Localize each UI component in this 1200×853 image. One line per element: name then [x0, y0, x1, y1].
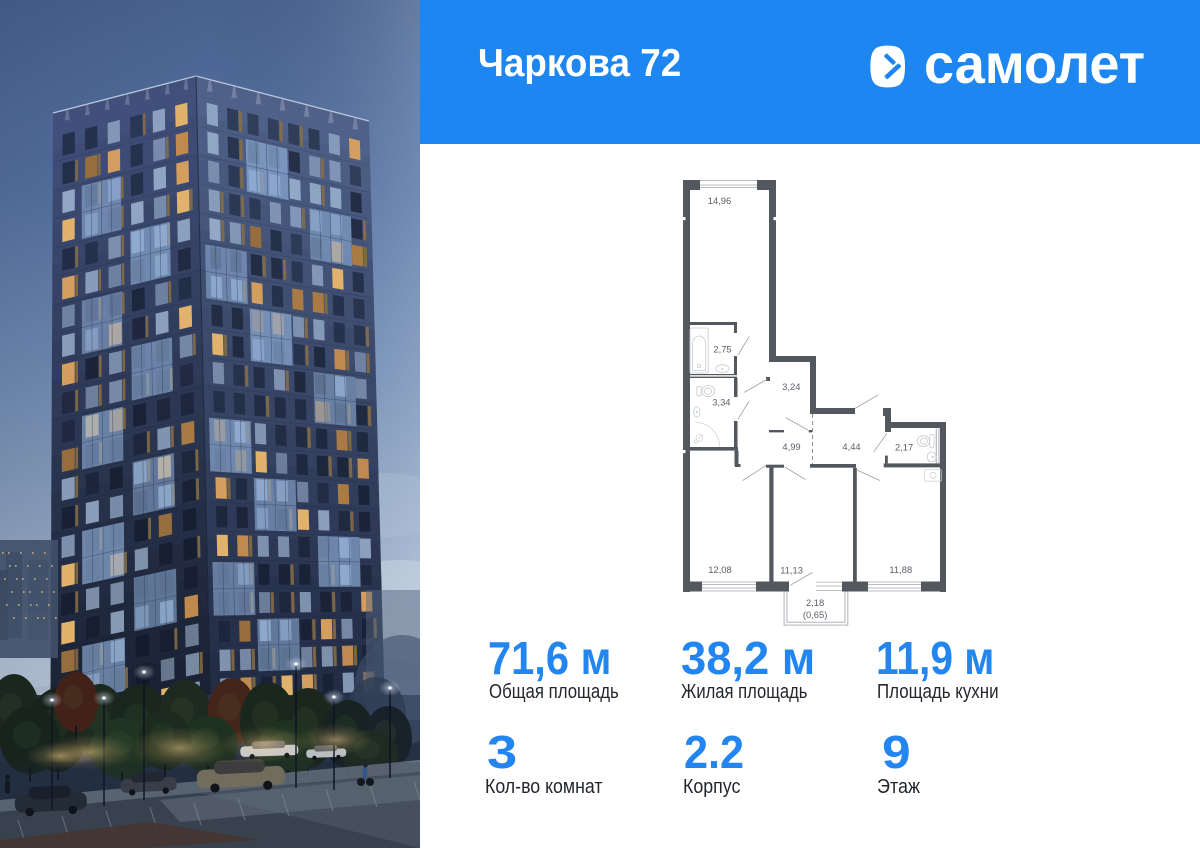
svg-text:11,88: 11,88	[889, 564, 912, 575]
svg-text:2,18: 2,18	[806, 597, 824, 608]
svg-text:2,75: 2,75	[713, 344, 731, 355]
svg-text:4,44: 4,44	[842, 441, 860, 452]
svg-text:11,13: 11,13	[780, 565, 803, 576]
svg-text:12,08: 12,08	[708, 564, 731, 575]
svg-text:2,17: 2,17	[895, 442, 913, 453]
svg-text:(0,65): (0,65)	[803, 609, 828, 620]
svg-text:3,34: 3,34	[712, 396, 730, 407]
svg-text:14,96: 14,96	[708, 195, 731, 206]
svg-text:4,99: 4,99	[782, 441, 800, 452]
svg-text:3,24: 3,24	[782, 381, 800, 392]
